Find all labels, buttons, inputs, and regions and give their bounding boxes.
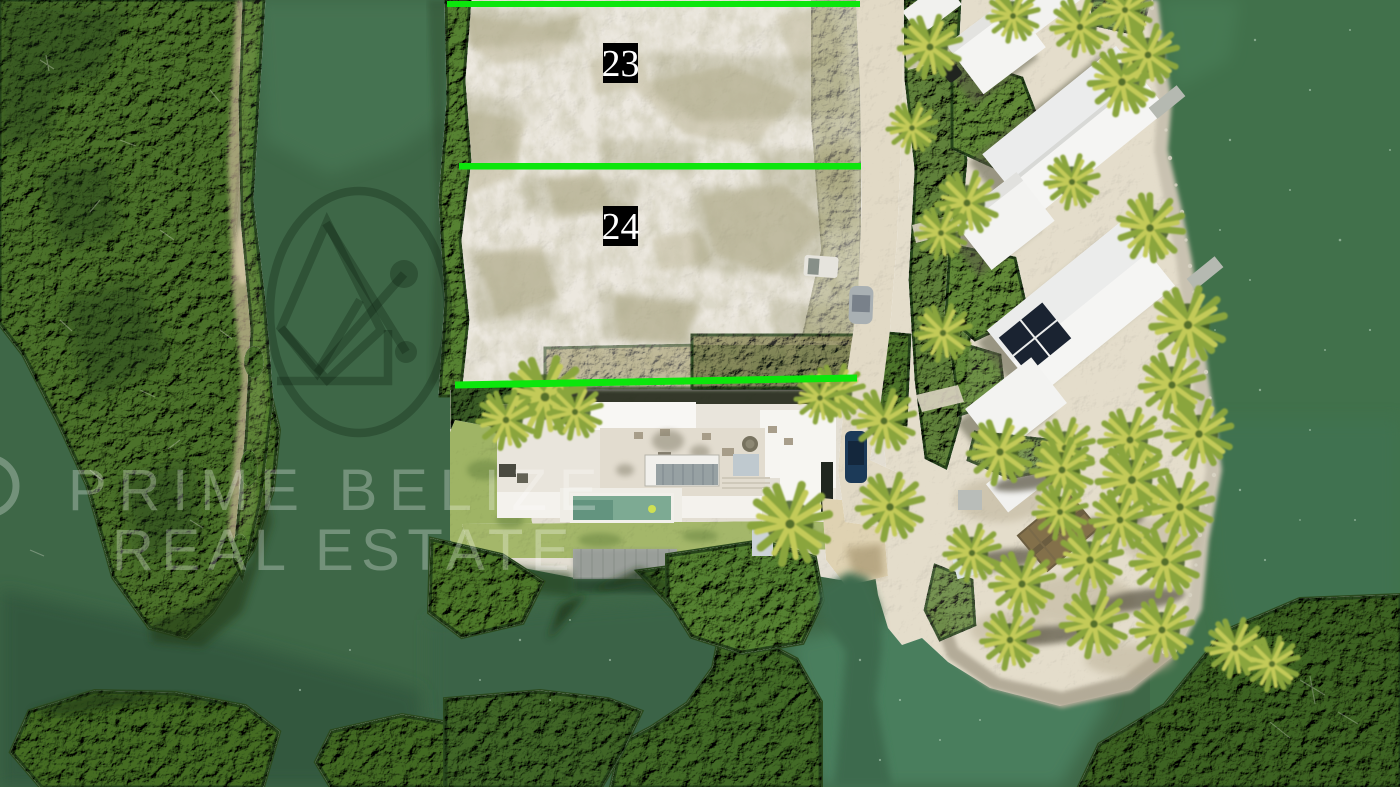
svg-text:PRIME BELIZE: PRIME BELIZE [68, 458, 609, 523]
svg-text:REAL ESTATE: REAL ESTATE [112, 518, 577, 583]
svg-text:23: 23 [602, 43, 640, 85]
svg-text:24: 24 [602, 206, 640, 248]
